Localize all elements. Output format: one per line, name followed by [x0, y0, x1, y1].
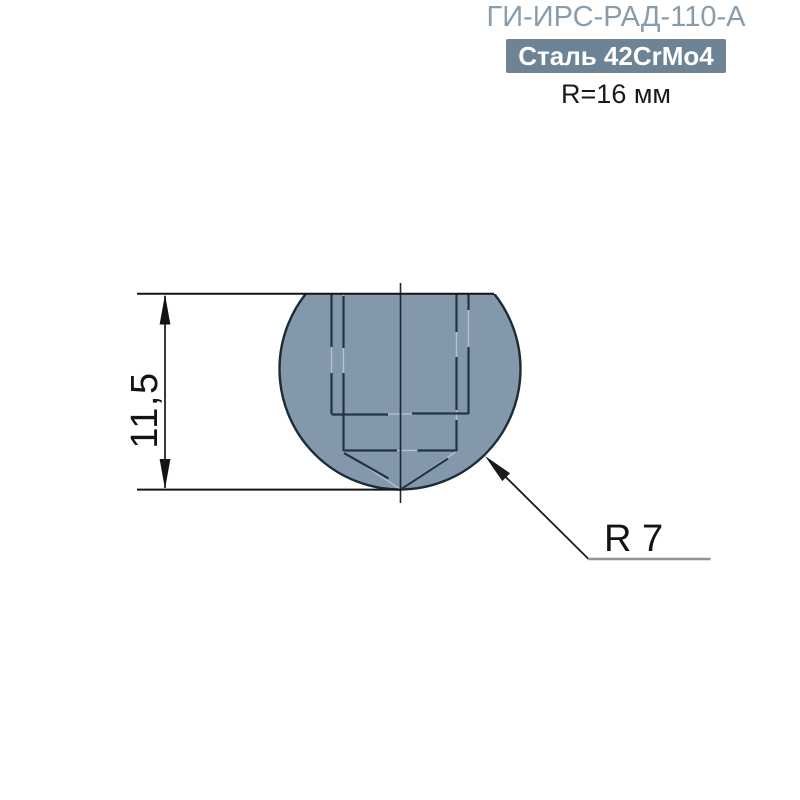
technical-drawing: 11,5 R 7 — [0, 0, 800, 800]
height-dimension-label: 11,5 — [124, 371, 166, 448]
dimension-arrow-top — [160, 295, 171, 325]
dimension-arrow-bottom — [160, 459, 171, 489]
radius-dimension-label: R 7 — [604, 518, 663, 560]
leader-line — [506, 477, 589, 559]
page: ГИ-ИРС-РАД-110-А Сталь 42CrMo4 R=16 мм — [0, 0, 800, 800]
